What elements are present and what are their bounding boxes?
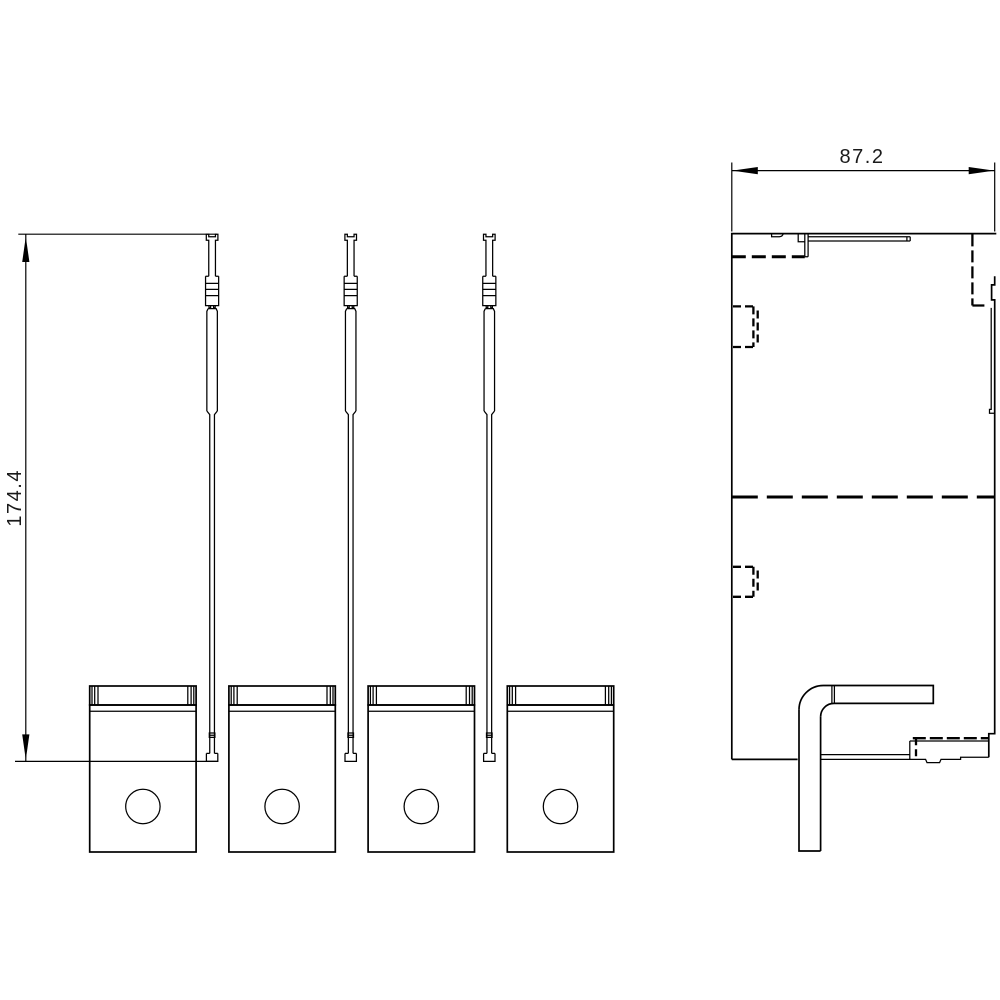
din-clip-upper-hidden	[733, 306, 758, 347]
dimension-arrow-up	[22, 237, 29, 262]
bottom-double-edge	[821, 755, 916, 760]
connection-pin-2	[344, 234, 357, 761]
terminal-block-1	[90, 686, 196, 852]
dimension-arrow-down	[22, 734, 29, 759]
width-dimension: 87.2	[732, 146, 995, 232]
elbow-leg	[799, 710, 821, 851]
top-step	[798, 234, 805, 242]
top-rib	[805, 234, 808, 257]
din-clip-lower-hidden	[733, 567, 758, 597]
top-strip	[808, 237, 910, 241]
front-view: 174.4	[4, 234, 614, 852]
dimension-arrow-left	[732, 167, 757, 174]
hidden-edge-top-right	[972, 234, 988, 305]
height-dimension: 174.4	[4, 234, 218, 761]
technical-drawing-page: 174.4 87.2	[0, 0, 1000, 1000]
block-side-edge	[910, 741, 989, 759]
terminal-block-4	[507, 686, 613, 852]
side-view: 87.2	[732, 146, 997, 851]
technical-drawing: 174.4 87.2	[0, 0, 1000, 1000]
elbow-outline	[799, 686, 933, 717]
bottom-right-block	[821, 738, 989, 762]
terminal-block-2	[229, 686, 335, 852]
dimension-arrow-right	[969, 167, 994, 174]
bottom-profile	[916, 757, 989, 762]
elbow-pin-side	[799, 686, 933, 852]
elbow-bend-lines	[832, 686, 835, 704]
connection-pin-1	[206, 234, 219, 761]
height-dimension-label: 174.4	[4, 469, 26, 527]
terminal-block-3	[368, 686, 474, 852]
width-dimension-label: 87.2	[840, 146, 885, 168]
connection-pin-3	[483, 234, 496, 761]
